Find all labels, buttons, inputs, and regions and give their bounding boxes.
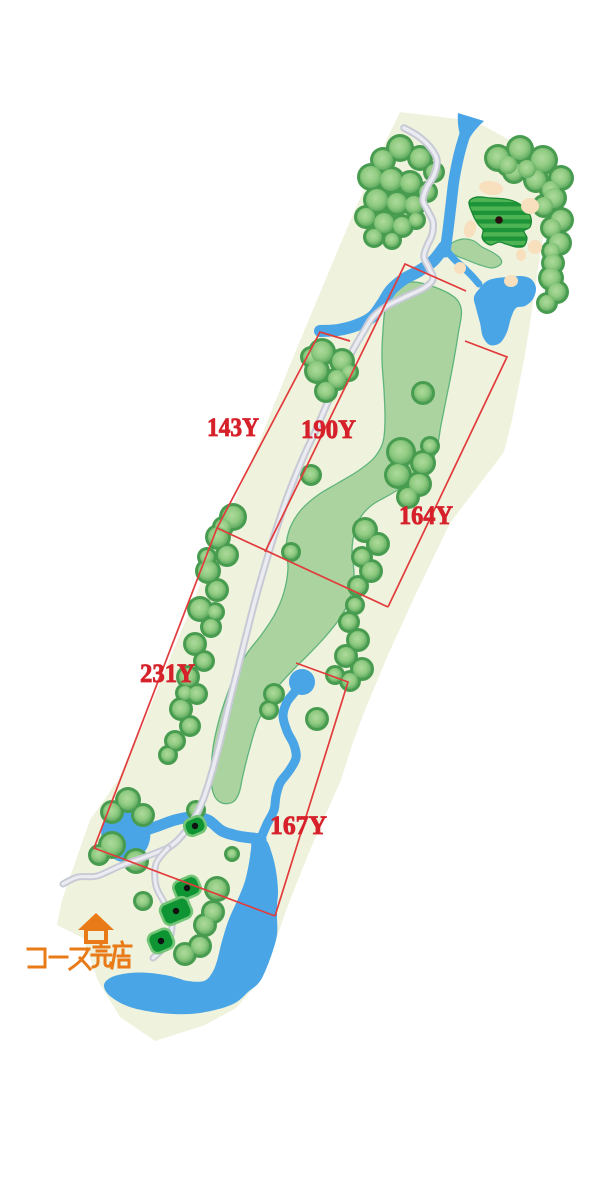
svg-text:164Y: 164Y: [399, 501, 453, 530]
svg-text:143Y: 143Y: [207, 413, 259, 442]
svg-text:190Y: 190Y: [301, 415, 356, 444]
svg-text:231Y: 231Y: [140, 659, 195, 688]
svg-text:167Y: 167Y: [270, 811, 327, 840]
